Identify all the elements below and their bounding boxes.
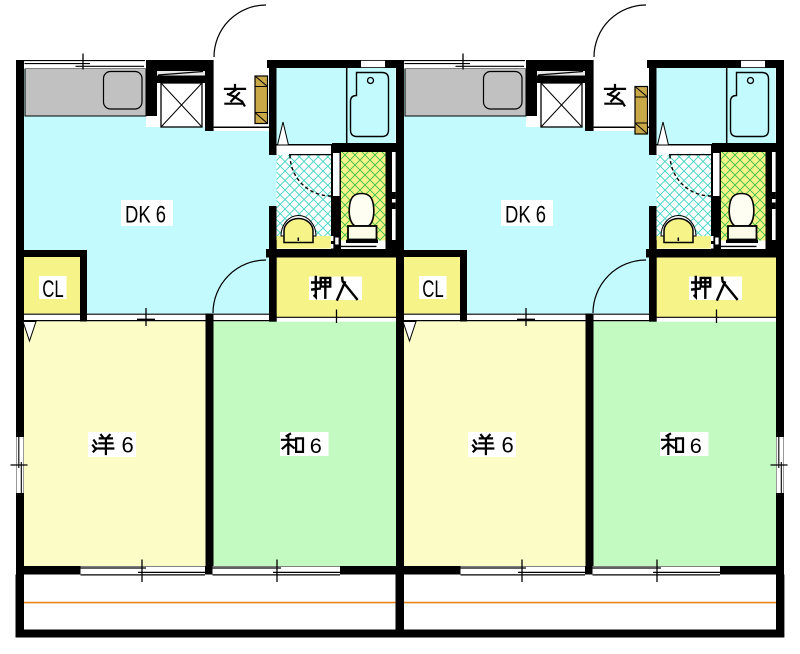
svg-text:DK 6: DK 6 [125, 201, 166, 228]
svg-text:DK 6: DK 6 [505, 201, 546, 228]
svg-text:6: 6 [310, 433, 322, 458]
svg-text:6: 6 [690, 433, 702, 458]
svg-text:6: 6 [122, 433, 134, 458]
svg-text:CL: CL [42, 276, 64, 303]
svg-text:CL: CL [422, 276, 444, 303]
svg-text:6: 6 [502, 433, 514, 458]
